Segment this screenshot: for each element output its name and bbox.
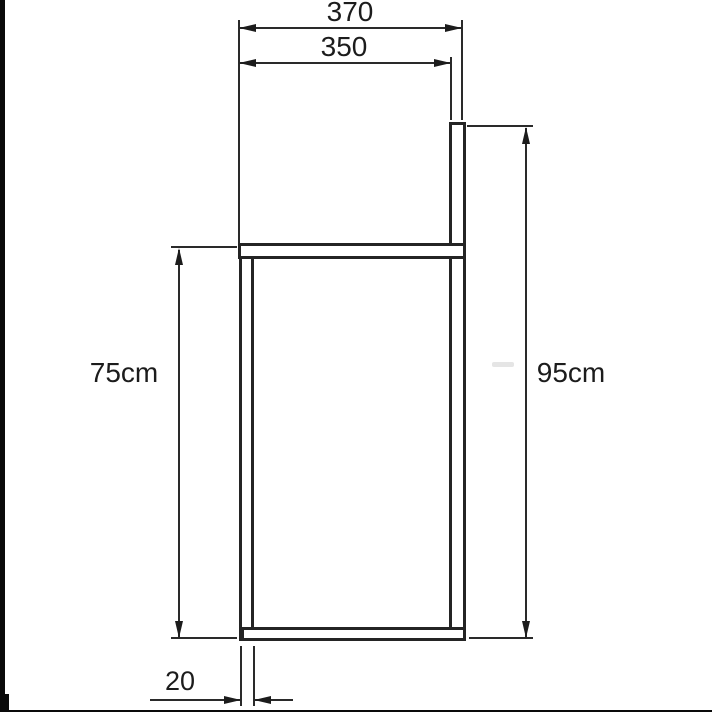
left-leg-profile (239, 252, 254, 641)
arrowhead-up-icon (522, 127, 530, 144)
arrowhead-left-icon (239, 59, 256, 67)
dim-line-75cm (178, 250, 180, 637)
dim-line-370 (239, 27, 462, 29)
dim-label-370: 370 (310, 0, 390, 26)
seat-rail-profile (238, 243, 466, 259)
extension-line-left-top (238, 20, 240, 244)
dim-label-350: 350 (304, 33, 384, 61)
arrowhead-left-icon (239, 24, 256, 32)
arrowhead-down-icon (175, 621, 183, 638)
arrowhead-left-icon (254, 696, 271, 704)
bottom-rail-profile (241, 627, 466, 641)
smudge-artifact (492, 362, 514, 367)
extension-line-right-outer (461, 20, 463, 120)
dim-line-350 (239, 62, 451, 64)
arrowhead-right-icon (224, 696, 241, 704)
arrowhead-right-icon (434, 59, 451, 67)
dim-label-95cm: 95cm (531, 359, 611, 387)
scan-edge-left (0, 0, 5, 712)
arrowhead-down-icon (522, 621, 530, 638)
arrowhead-right-icon (445, 24, 462, 32)
technical-dimension-drawing: 370 350 75cm 95cm 20 (0, 0, 712, 712)
back-post-profile (449, 122, 466, 641)
dim-label-20: 20 (156, 668, 204, 695)
arrowhead-up-icon (175, 248, 183, 265)
dim-line-95cm (525, 128, 527, 637)
dim-label-75cm: 75cm (86, 359, 162, 387)
